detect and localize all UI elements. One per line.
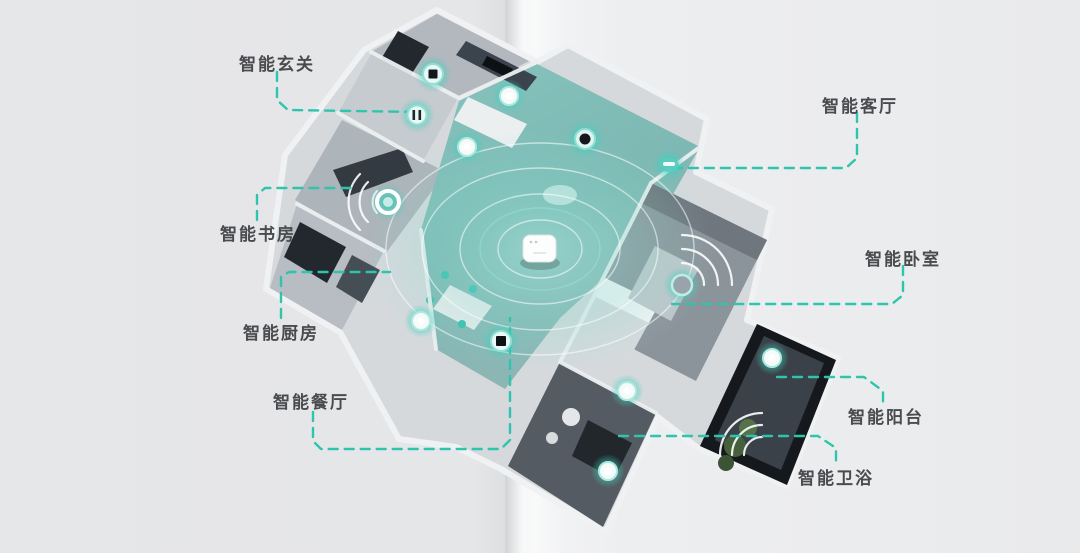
bathroom-fixture — [562, 408, 580, 426]
balcony-plant — [718, 455, 734, 471]
smart-home-diagram: 智能玄关 智能客厅 智能书房 智能厨房 智能餐厅 智能卧室 智能阳台 智能卫浴 — [0, 0, 1080, 553]
bathroom-fixture — [546, 432, 558, 444]
zone-label-bedroom: 智能卧室 — [865, 245, 941, 270]
zone-label-study: 智能书房 — [220, 220, 296, 245]
device-living-speaker[interactable] — [566, 120, 604, 158]
balcony-plant — [724, 435, 746, 457]
device-bedroom-sensor[interactable] — [663, 266, 701, 304]
zone-label-balcony: 智能阳台 — [848, 403, 924, 428]
device-living-sensor-2[interactable] — [450, 130, 484, 164]
device-hallway-switch[interactable] — [399, 97, 435, 133]
central-hub-device[interactable] — [520, 235, 560, 270]
zone-label-kitchen: 智能厨房 — [243, 319, 319, 344]
device-balcony-sensor[interactable] — [755, 341, 789, 375]
zone-label-living: 智能客厅 — [822, 92, 898, 117]
device-kitchen-sensor[interactable] — [404, 304, 438, 338]
device-study-socket[interactable] — [369, 183, 407, 221]
zone-label-entrance: 智能玄关 — [239, 50, 315, 75]
device-dining-panel[interactable] — [482, 322, 520, 360]
zone-label-dining: 智能餐厅 — [273, 388, 349, 413]
floorplan-svg — [0, 0, 1080, 553]
device-living-sensor-1[interactable] — [492, 79, 526, 113]
device-living-wall-controller[interactable] — [653, 149, 685, 181]
zone-label-bathroom: 智能卫浴 — [798, 464, 874, 489]
device-bathroom-sensor-1[interactable] — [610, 374, 644, 408]
device-entrance-panel[interactable] — [414, 55, 452, 93]
device-bathroom-sensor-2[interactable] — [591, 454, 625, 488]
